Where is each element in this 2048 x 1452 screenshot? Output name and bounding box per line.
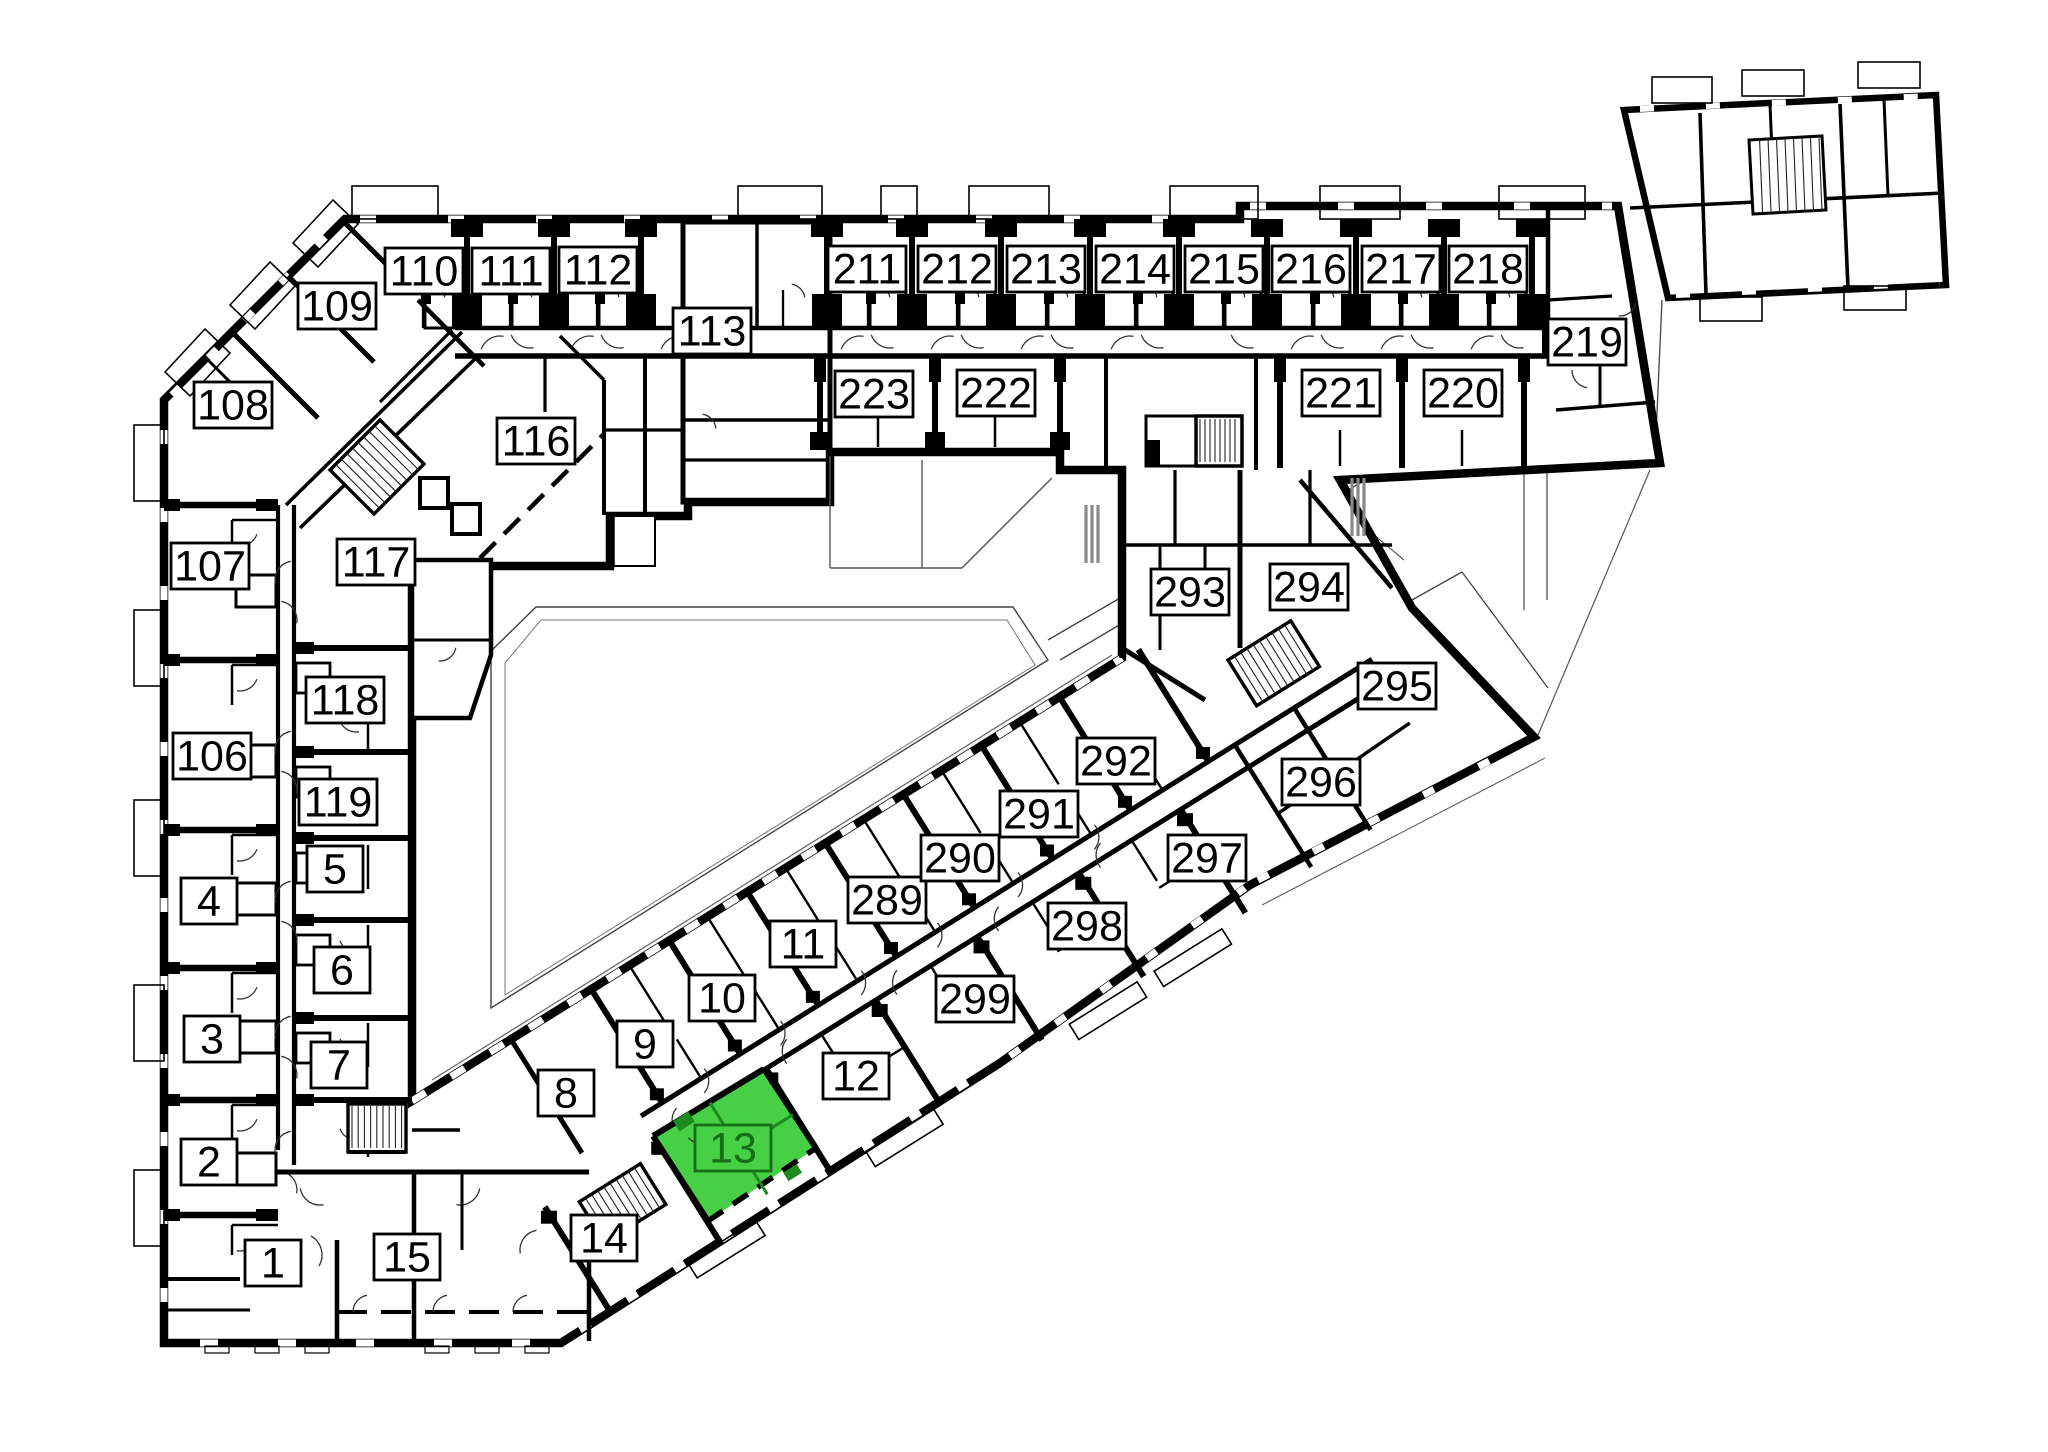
- svg-text:119: 119: [304, 779, 373, 827]
- svg-text:220: 220: [1427, 370, 1499, 418]
- svg-text:213: 213: [1010, 246, 1082, 294]
- svg-text:221: 221: [1305, 370, 1377, 418]
- svg-text:7: 7: [327, 1042, 351, 1090]
- svg-text:118: 118: [311, 677, 380, 725]
- svg-text:294: 294: [1273, 564, 1345, 612]
- svg-text:291: 291: [1003, 791, 1075, 839]
- svg-text:14: 14: [580, 1215, 628, 1263]
- svg-text:293: 293: [1154, 569, 1226, 617]
- svg-text:290: 290: [924, 835, 996, 883]
- svg-text:2: 2: [197, 1139, 221, 1187]
- svg-text:222: 222: [960, 370, 1032, 418]
- svg-text:109: 109: [301, 283, 373, 331]
- svg-text:223: 223: [838, 371, 910, 419]
- svg-text:5: 5: [323, 846, 347, 894]
- svg-text:107: 107: [174, 543, 246, 591]
- svg-text:215: 215: [1188, 246, 1260, 294]
- svg-text:117: 117: [342, 539, 411, 587]
- svg-text:289: 289: [851, 877, 923, 925]
- svg-text:298: 298: [1051, 903, 1123, 951]
- svg-text:110: 110: [390, 248, 459, 296]
- svg-text:108: 108: [197, 382, 269, 430]
- svg-text:9: 9: [633, 1021, 657, 1069]
- svg-text:3: 3: [200, 1016, 224, 1064]
- svg-text:295: 295: [1361, 663, 1433, 711]
- svg-text:111: 111: [478, 248, 543, 296]
- svg-text:116: 116: [502, 418, 571, 466]
- svg-text:1: 1: [261, 1240, 285, 1288]
- svg-text:10: 10: [698, 975, 746, 1023]
- svg-text:214: 214: [1099, 246, 1171, 294]
- svg-text:106: 106: [176, 733, 248, 781]
- svg-text:112: 112: [564, 247, 633, 295]
- svg-text:299: 299: [939, 976, 1011, 1024]
- svg-text:15: 15: [383, 1234, 431, 1282]
- svg-text:12: 12: [832, 1053, 880, 1101]
- svg-text:216: 216: [1275, 246, 1347, 294]
- svg-text:113: 113: [678, 308, 747, 356]
- svg-text:11: 11: [781, 921, 826, 969]
- svg-text:4: 4: [197, 878, 221, 926]
- svg-text:296: 296: [1285, 759, 1357, 807]
- svg-text:212: 212: [921, 246, 993, 294]
- svg-text:211: 211: [833, 246, 902, 294]
- svg-text:292: 292: [1080, 738, 1152, 786]
- svg-text:219: 219: [1551, 319, 1623, 367]
- svg-text:13: 13: [709, 1125, 757, 1173]
- svg-text:218: 218: [1452, 246, 1524, 294]
- svg-text:297: 297: [1171, 835, 1243, 883]
- svg-text:8: 8: [554, 1070, 578, 1118]
- svg-text:217: 217: [1365, 246, 1437, 294]
- svg-text:6: 6: [330, 947, 354, 995]
